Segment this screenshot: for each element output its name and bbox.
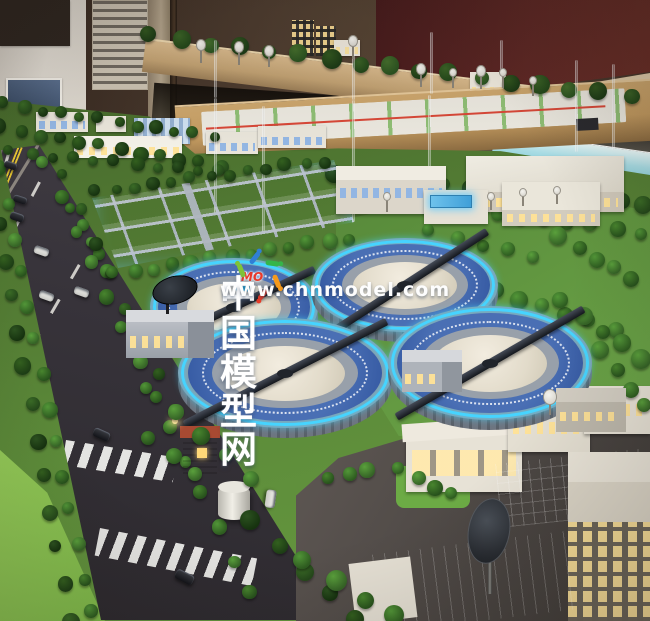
roof bbox=[502, 182, 600, 210]
tree bbox=[5, 289, 18, 302]
tree bbox=[20, 300, 34, 314]
tree bbox=[129, 264, 143, 278]
tree bbox=[502, 75, 519, 92]
tree bbox=[76, 203, 87, 214]
watermark-site-url: www.chnmodel.com bbox=[220, 279, 450, 301]
logo-figure bbox=[265, 254, 283, 273]
round-signboard bbox=[476, 65, 486, 77]
tree bbox=[15, 265, 27, 277]
pool-pavilion bbox=[424, 190, 488, 224]
tree bbox=[277, 157, 290, 170]
logo-figure bbox=[247, 251, 264, 264]
acrylic-support-rod bbox=[575, 60, 578, 152]
tree bbox=[62, 613, 80, 621]
tree bbox=[85, 255, 98, 268]
tree bbox=[624, 89, 639, 104]
roof bbox=[336, 166, 446, 180]
crosswalk bbox=[62, 440, 177, 482]
tree bbox=[88, 184, 100, 196]
bridge-pivot bbox=[482, 359, 498, 368]
tree bbox=[58, 576, 73, 591]
lit-windows bbox=[261, 137, 323, 145]
tree bbox=[55, 190, 69, 204]
tree bbox=[107, 154, 118, 165]
tree bbox=[36, 156, 48, 168]
tree bbox=[79, 574, 90, 585]
roof bbox=[556, 388, 626, 402]
tree bbox=[381, 56, 400, 75]
tree bbox=[322, 49, 342, 69]
tree bbox=[322, 472, 333, 483]
tree bbox=[302, 158, 313, 169]
tree bbox=[140, 26, 156, 42]
lit-windows bbox=[560, 412, 620, 421]
tree bbox=[384, 605, 404, 621]
watermark-site-name: 中国模型网 bbox=[220, 276, 260, 470]
tree bbox=[353, 57, 369, 73]
acrylic-support-rod bbox=[430, 32, 433, 94]
tree bbox=[88, 156, 98, 166]
tree bbox=[0, 96, 8, 107]
bridge-pivot bbox=[277, 369, 293, 378]
roof bbox=[402, 350, 462, 362]
tree bbox=[549, 227, 567, 245]
tree bbox=[149, 120, 162, 133]
tree bbox=[357, 592, 374, 609]
tree bbox=[27, 332, 38, 343]
tree bbox=[343, 467, 356, 480]
tree bbox=[212, 519, 227, 534]
tree bbox=[193, 485, 206, 498]
pump-house bbox=[402, 350, 462, 392]
tree bbox=[115, 117, 125, 127]
tree bbox=[192, 427, 210, 445]
tree bbox=[623, 271, 639, 287]
tree bbox=[42, 505, 58, 521]
tree bbox=[106, 266, 118, 278]
tree bbox=[9, 325, 24, 340]
tree bbox=[67, 151, 79, 163]
lit-window bbox=[197, 448, 207, 458]
tree bbox=[132, 121, 143, 132]
tree bbox=[30, 434, 47, 451]
exhibit-logo-panel bbox=[92, 0, 148, 90]
tree bbox=[14, 357, 32, 375]
tree bbox=[37, 468, 51, 482]
tree bbox=[392, 462, 403, 473]
pump-house bbox=[126, 310, 214, 358]
plant-building bbox=[502, 182, 600, 226]
acrylic-support-rod bbox=[612, 64, 615, 150]
round-signboard bbox=[543, 389, 557, 405]
tree bbox=[91, 111, 103, 123]
tree bbox=[326, 570, 347, 591]
tree bbox=[427, 480, 442, 495]
tree bbox=[37, 367, 50, 380]
scale-model-photo: MO 中国模型网 www.chnmodel.com bbox=[0, 0, 650, 621]
wall bbox=[442, 362, 462, 392]
tree bbox=[18, 100, 31, 113]
tree bbox=[16, 125, 29, 138]
tree bbox=[115, 142, 128, 155]
tree bbox=[84, 604, 97, 617]
wall-photo bbox=[0, 0, 70, 46]
tree bbox=[131, 157, 144, 170]
tree bbox=[527, 251, 538, 262]
tree bbox=[89, 237, 102, 250]
tree bbox=[153, 368, 165, 380]
tree bbox=[607, 260, 621, 274]
tree bbox=[613, 334, 630, 351]
tree bbox=[99, 289, 114, 304]
tree bbox=[293, 551, 311, 569]
tree bbox=[631, 349, 650, 369]
tree bbox=[129, 183, 140, 194]
tree bbox=[591, 341, 609, 359]
lit-windows bbox=[39, 121, 85, 129]
tree bbox=[92, 138, 103, 149]
tree bbox=[240, 510, 260, 530]
round-signboard bbox=[416, 63, 426, 75]
wall bbox=[568, 482, 650, 522]
tree bbox=[634, 196, 650, 214]
tree bbox=[243, 165, 253, 175]
tree bbox=[260, 164, 271, 175]
utility-building bbox=[556, 388, 626, 432]
tree bbox=[146, 177, 159, 190]
tree bbox=[57, 169, 67, 179]
round-signboard bbox=[196, 39, 206, 51]
round-signboard bbox=[234, 41, 244, 53]
tree bbox=[62, 502, 74, 514]
industrial-building bbox=[258, 126, 326, 148]
round-signboard bbox=[348, 35, 358, 47]
tree bbox=[112, 185, 122, 195]
tree bbox=[289, 44, 306, 61]
tree bbox=[188, 467, 202, 481]
tree bbox=[359, 462, 374, 477]
roof bbox=[126, 310, 214, 322]
tree bbox=[228, 556, 241, 569]
tree bbox=[637, 398, 650, 412]
tree bbox=[501, 242, 515, 256]
tree bbox=[168, 404, 183, 419]
lit-pool bbox=[430, 195, 472, 208]
round-signboard bbox=[264, 45, 274, 57]
tree bbox=[71, 226, 82, 237]
lit-windows bbox=[405, 374, 439, 384]
tree bbox=[224, 170, 236, 182]
tree bbox=[242, 585, 257, 600]
tree bbox=[610, 221, 625, 236]
wall bbox=[188, 322, 214, 358]
lit-windows bbox=[130, 336, 184, 348]
tree bbox=[150, 391, 162, 403]
tree bbox=[412, 471, 425, 484]
tree bbox=[72, 537, 86, 551]
lit-windows bbox=[507, 214, 595, 222]
acrylic-support-rod bbox=[214, 40, 217, 98]
site-plan-block bbox=[576, 118, 599, 131]
tree bbox=[346, 610, 364, 621]
tree bbox=[72, 136, 86, 150]
tree bbox=[42, 402, 57, 417]
tree bbox=[272, 538, 288, 554]
